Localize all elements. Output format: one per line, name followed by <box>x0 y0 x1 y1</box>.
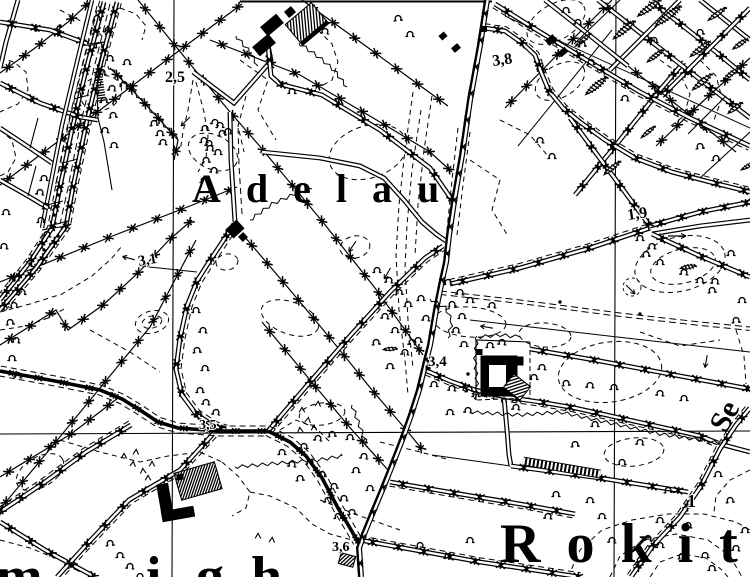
svg-text:m: m <box>0 546 43 577</box>
svg-text:3,8: 3,8 <box>491 50 513 70</box>
svg-text:1,9: 1,9 <box>626 204 648 224</box>
svg-text:2,5: 2,5 <box>165 69 185 86</box>
svg-text:h: h <box>251 546 282 577</box>
svg-text:3,5: 3,5 <box>199 418 217 433</box>
svg-text:g: g <box>196 546 224 577</box>
svg-text:1: 1 <box>687 491 696 511</box>
svg-text:3,6: 3,6 <box>332 540 350 555</box>
svg-text:Rokit: Rokit <box>500 513 750 575</box>
svg-text:3,1: 3,1 <box>137 251 158 270</box>
svg-text:3,4: 3,4 <box>428 354 447 370</box>
svg-text:Adelau: Adelau <box>192 166 464 211</box>
svg-text:i: i <box>146 546 162 577</box>
